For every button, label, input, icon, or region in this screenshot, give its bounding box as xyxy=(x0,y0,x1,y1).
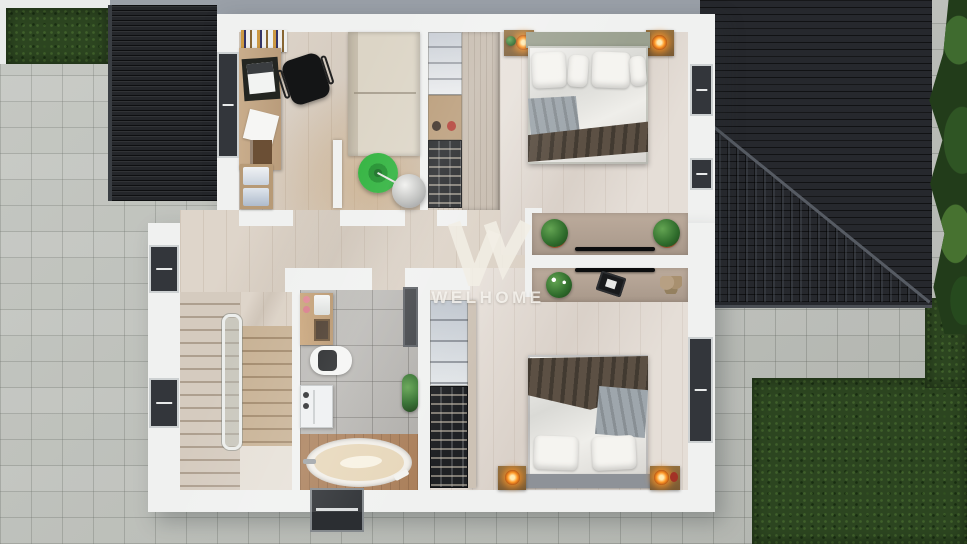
roof-rib-face xyxy=(700,0,932,305)
nightstand-decor xyxy=(670,472,678,482)
grass-bottom-right xyxy=(752,378,967,544)
bedroom1-window-upper xyxy=(690,64,713,116)
stair-flight-right xyxy=(242,326,292,446)
linen-cabinet xyxy=(240,164,273,209)
closet2-box-shelf xyxy=(430,300,468,386)
nightstand-b1-right xyxy=(646,30,674,56)
desk-box xyxy=(250,140,272,165)
bed2-pillow-2 xyxy=(591,435,637,471)
sphere-lamp xyxy=(392,174,426,208)
closet2-shoe-rack xyxy=(430,386,468,488)
decor-rolls xyxy=(660,276,682,294)
nightstand-b2-left xyxy=(498,466,526,490)
lamp-b1-right xyxy=(652,35,667,50)
bathroom-bay-window xyxy=(310,488,364,532)
tv-bar-b1 xyxy=(575,247,655,251)
closet-shoe-rack xyxy=(428,140,462,208)
sofa-cushion-seam xyxy=(354,92,416,94)
wardrobe-top-panel xyxy=(462,32,500,210)
watermark: WELHOME xyxy=(412,220,564,312)
bedroom2-balcony-door xyxy=(688,337,713,443)
watermark-text: WELHOME xyxy=(412,288,564,308)
stair-window xyxy=(149,378,179,428)
bath-faucet xyxy=(303,459,316,464)
palm-tree xyxy=(926,0,967,334)
glass-railing xyxy=(222,314,242,450)
bed2-gray-throw xyxy=(595,386,648,438)
stair-landing-top xyxy=(240,292,292,326)
bed1-pillow-1 xyxy=(531,51,567,89)
main-roof xyxy=(700,0,932,308)
nightstand-plant xyxy=(506,36,516,46)
tablet-screen xyxy=(605,279,617,290)
vanity xyxy=(300,293,333,345)
closet-box-shelf xyxy=(428,32,462,95)
garage-roof xyxy=(108,5,217,201)
floor-plan-render: WELHOME xyxy=(0,0,967,544)
shoes-red-pair xyxy=(447,121,456,131)
toilet-lid xyxy=(318,350,337,371)
stair-landing-bottom xyxy=(240,446,292,490)
grass-top-left xyxy=(6,8,108,64)
office-window xyxy=(217,52,239,158)
plant-b1-right xyxy=(653,219,680,247)
hall-window xyxy=(149,245,179,293)
shoes-dark-pair xyxy=(432,121,441,131)
washer-knob-1 xyxy=(303,392,309,398)
bedroom1-window-lower xyxy=(690,158,713,190)
folded-linen-bottom xyxy=(243,188,269,206)
lamp-b2-right xyxy=(654,470,669,485)
bed2-pillow-1 xyxy=(533,435,578,471)
vanity-tray xyxy=(314,319,330,341)
sofa xyxy=(348,32,420,156)
bay-window-sill xyxy=(316,508,358,511)
closet2-side-panel xyxy=(468,300,476,488)
laptop xyxy=(247,62,276,95)
bathroom-wall-right xyxy=(418,290,430,490)
bed1-pillow-4 xyxy=(629,55,648,86)
office-door-leaf xyxy=(333,140,342,208)
wall-a-seg1 xyxy=(239,210,293,226)
bed1-pillow-3 xyxy=(591,51,630,88)
toilet xyxy=(310,346,352,375)
washer-knob-2 xyxy=(303,403,309,409)
nightstand-b2-right xyxy=(650,466,680,490)
towel-stack xyxy=(314,295,330,315)
washer-door-seam xyxy=(313,390,315,424)
soap-dish-1 xyxy=(303,296,310,303)
tv-bar-b2 xyxy=(575,268,655,272)
closet-shoe-shelf xyxy=(428,95,462,140)
folded-linen-top xyxy=(243,167,269,185)
bathroom-plant xyxy=(402,374,418,412)
washing-machine xyxy=(300,385,333,428)
bed2-headboard xyxy=(524,474,652,488)
bed1-pillow-2 xyxy=(567,54,589,87)
wall-a-seg2 xyxy=(340,210,405,226)
sofa-backrest xyxy=(348,32,358,156)
watermark-logo-icon xyxy=(448,220,532,286)
lamp-b2-left xyxy=(505,470,520,485)
soap-dish-2 xyxy=(303,306,310,313)
